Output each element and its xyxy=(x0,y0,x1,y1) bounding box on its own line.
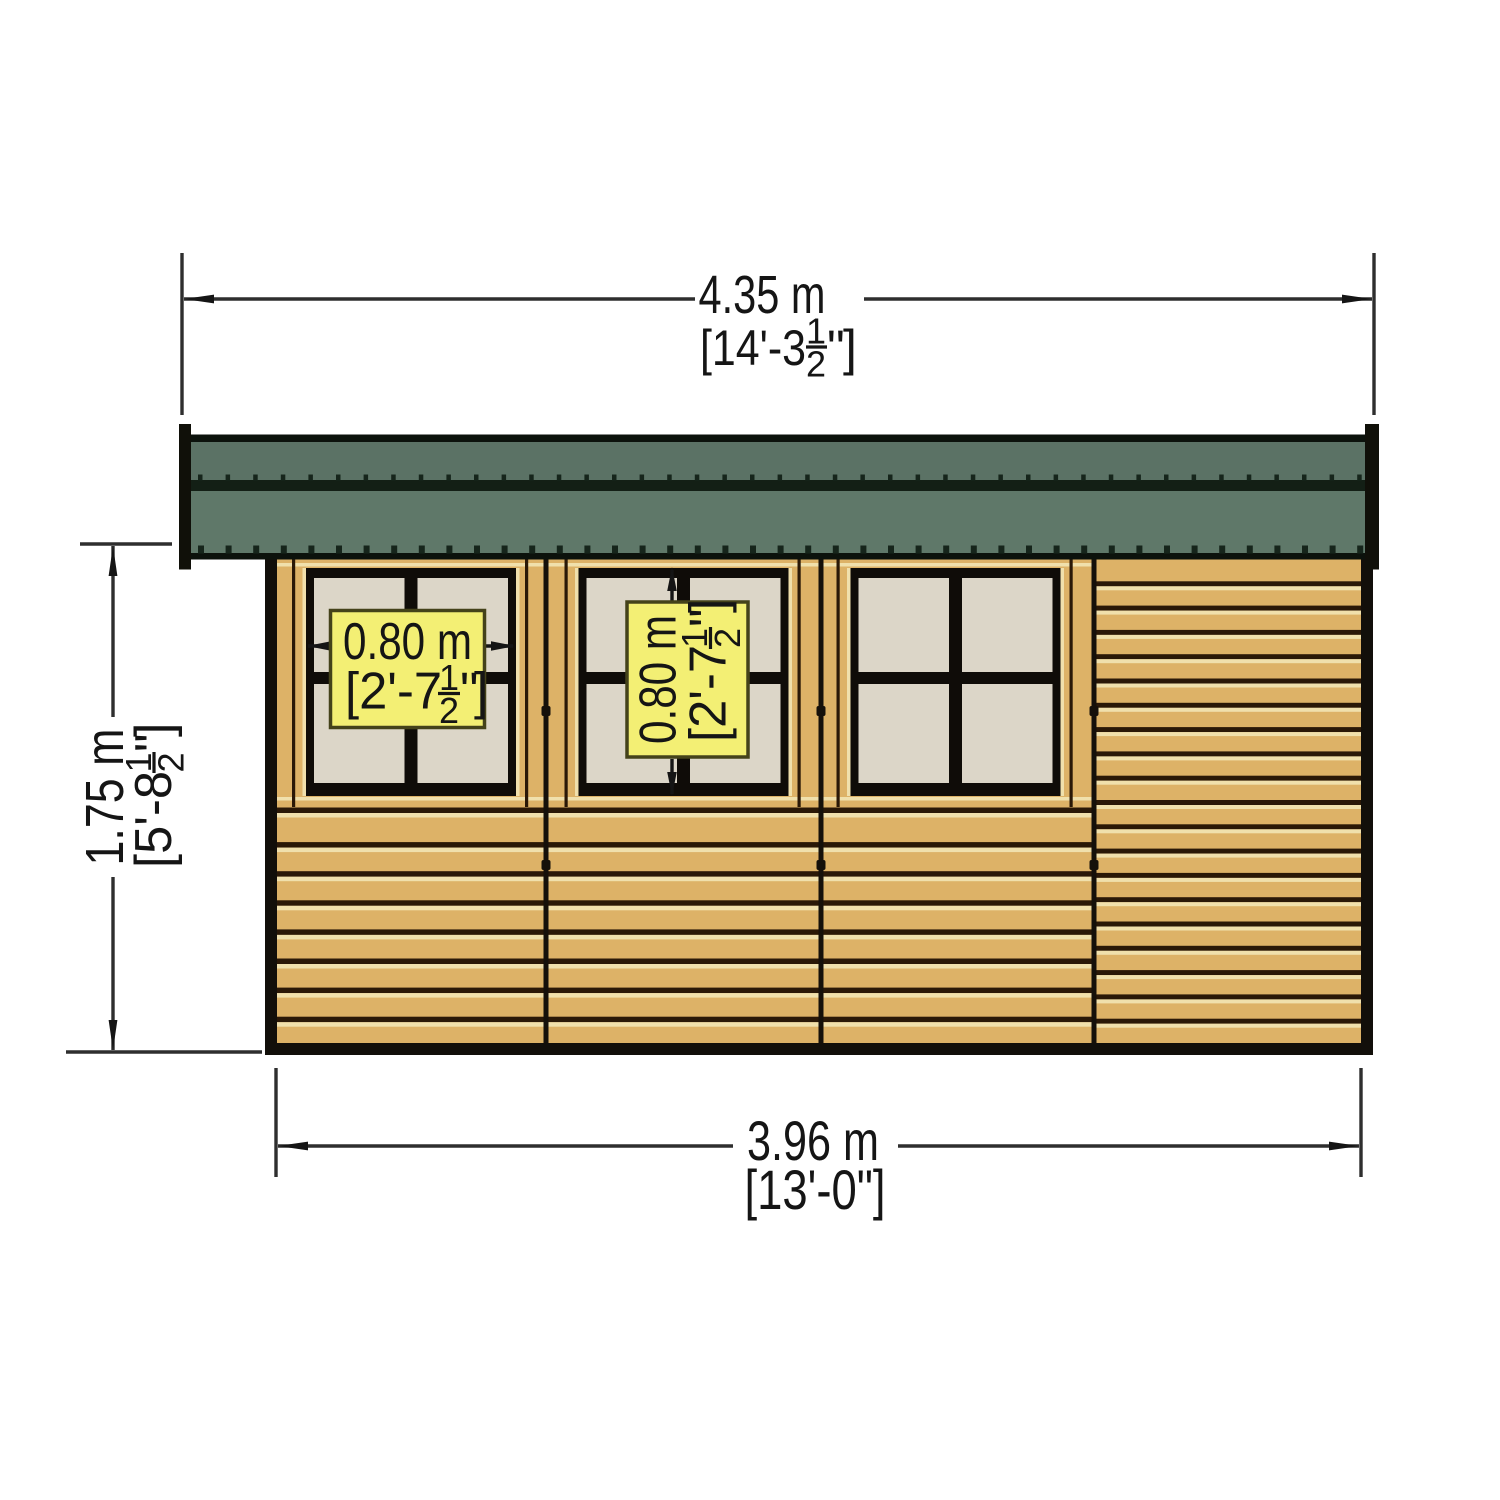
svg-text:2: 2 xyxy=(151,752,192,772)
svg-text:]: ] xyxy=(474,663,488,721)
svg-text:[2'-7: [2'-7 xyxy=(345,663,442,721)
svg-text:[5'-8: [5'-8 xyxy=(125,771,183,868)
svg-text:]: ] xyxy=(125,723,183,737)
svg-text:]: ] xyxy=(680,599,738,613)
svg-text:[14'-3: [14'-3 xyxy=(700,320,806,376)
svg-text:[2'-7: [2'-7 xyxy=(680,645,738,742)
svg-text:2: 2 xyxy=(707,628,748,648)
svg-text:]: ] xyxy=(843,320,857,376)
svg-text:2: 2 xyxy=(439,690,459,731)
svg-text:2: 2 xyxy=(806,344,826,385)
svg-text:[13'-0"]: [13'-0"] xyxy=(745,1158,886,1221)
